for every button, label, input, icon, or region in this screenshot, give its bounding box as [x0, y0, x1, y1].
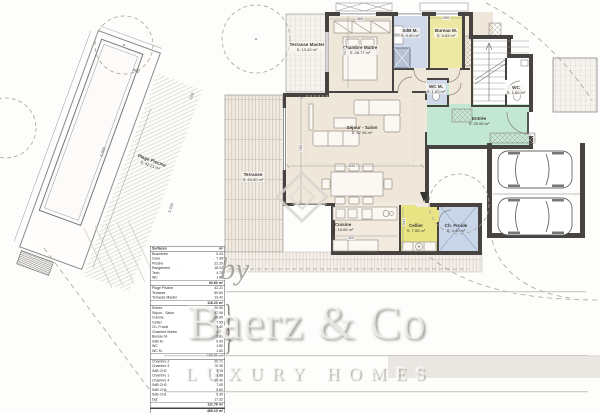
dim-label: 760: [299, 144, 303, 152]
room-area: S: 9.83 m²: [435, 33, 457, 38]
room-label-cuisine: Cuisine S: 16.65 m²: [332, 222, 355, 232]
room-area: S: 20.95 m²: [469, 121, 490, 126]
room-area: S: 9.90 m²: [401, 33, 419, 38]
dim-label: 341: [402, 218, 406, 226]
row-value: 460.10 m²: [207, 409, 223, 413]
row-label: Dgt: [152, 397, 157, 402]
watermark-brand: Baerz & Co: [187, 296, 426, 351]
floorplan-page: Terrasse Master S: 13.42 m² Chambre Mait…: [0, 0, 600, 413]
dim-label: 420: [347, 236, 355, 240]
row-label: WC M.: [152, 349, 163, 354]
row-label: Terrasse Master: [152, 296, 177, 301]
room-label-chambre-maitre: Chambre Maitre S: 28.77 m²: [342, 45, 379, 55]
dim-label: 507: [343, 48, 347, 56]
watermark-rule: [164, 391, 588, 393]
room-area: S: 16.65 m²: [333, 227, 354, 232]
room-label-terrasse: Terrasse S: 60.60 m²: [242, 172, 265, 182]
room-area: S: 67.06 m²: [347, 130, 378, 135]
table-grand-total: 460.10 m²: [151, 408, 225, 413]
watermark-by: by: [220, 251, 249, 287]
terrasse-master-deck: [286, 14, 328, 92]
sofa: [354, 100, 400, 115]
room-label-ch-froide: Ch. Froide S: 4.40 m²: [444, 223, 469, 233]
table-total-row: 111.76 m²: [151, 402, 225, 407]
room-area: S: 28.77 m²: [343, 50, 378, 55]
planters: [336, 3, 468, 11]
table-total-row: 63.60 m²: [151, 280, 225, 285]
watermark-rule: [164, 355, 588, 357]
room-area: S: 60.60 m²: [243, 177, 264, 182]
table-section-basement: Buanderie9.43 Cave7.36 Piscine22.29 Rang…: [151, 252, 225, 286]
row-value: 17.32: [214, 397, 223, 402]
dim-label: 250: [442, 16, 450, 20]
room-area: S: 1.60 m²: [427, 89, 445, 94]
dim-label: 365: [356, 17, 364, 21]
row-value: 111.76 m²: [207, 403, 223, 408]
east-balcony: [553, 58, 597, 112]
car-icon: [498, 198, 572, 235]
watermark-rule: [226, 291, 586, 293]
room-label-wc: WC S: 1.80 m²: [506, 85, 526, 95]
row-label: WC: [152, 276, 158, 281]
watermark-tagline: LUXURY HOMES: [186, 364, 435, 385]
room-label-sdb-m: SdB M. S: 9.90 m²: [400, 28, 420, 38]
tree-icon: [0, 98, 36, 158]
room-label-bureau-m: Bureau M. S: 9.83 m²: [434, 28, 458, 38]
room-label-cellier: Cellier S: 7.55 m²: [406, 223, 426, 233]
floorplan-drawing: [0, 0, 600, 413]
room-label-wc-m: WC M. S: 1.60 m²: [426, 84, 446, 94]
room-area: S: 7.55 m²: [407, 228, 425, 233]
dining-table: [331, 172, 383, 196]
table-header-label: Surfaces: [152, 247, 167, 252]
car-icon: [498, 151, 572, 188]
dim-label: 835: [348, 164, 356, 168]
room-label-sejour-salon: Séjour - Salon S: 67.06 m²: [346, 125, 379, 135]
room-label-terrasse-master: Terrasse Master S: 13.42 m²: [289, 42, 326, 52]
room-label-entree: Entrée S: 20.95 m²: [468, 116, 491, 126]
room-area: S: 1.80 m²: [507, 90, 525, 95]
room-area: S: 13.42 m²: [290, 47, 325, 52]
room-area: S: 4.40 m²: [445, 228, 468, 233]
room-bureau-m: [430, 14, 462, 70]
